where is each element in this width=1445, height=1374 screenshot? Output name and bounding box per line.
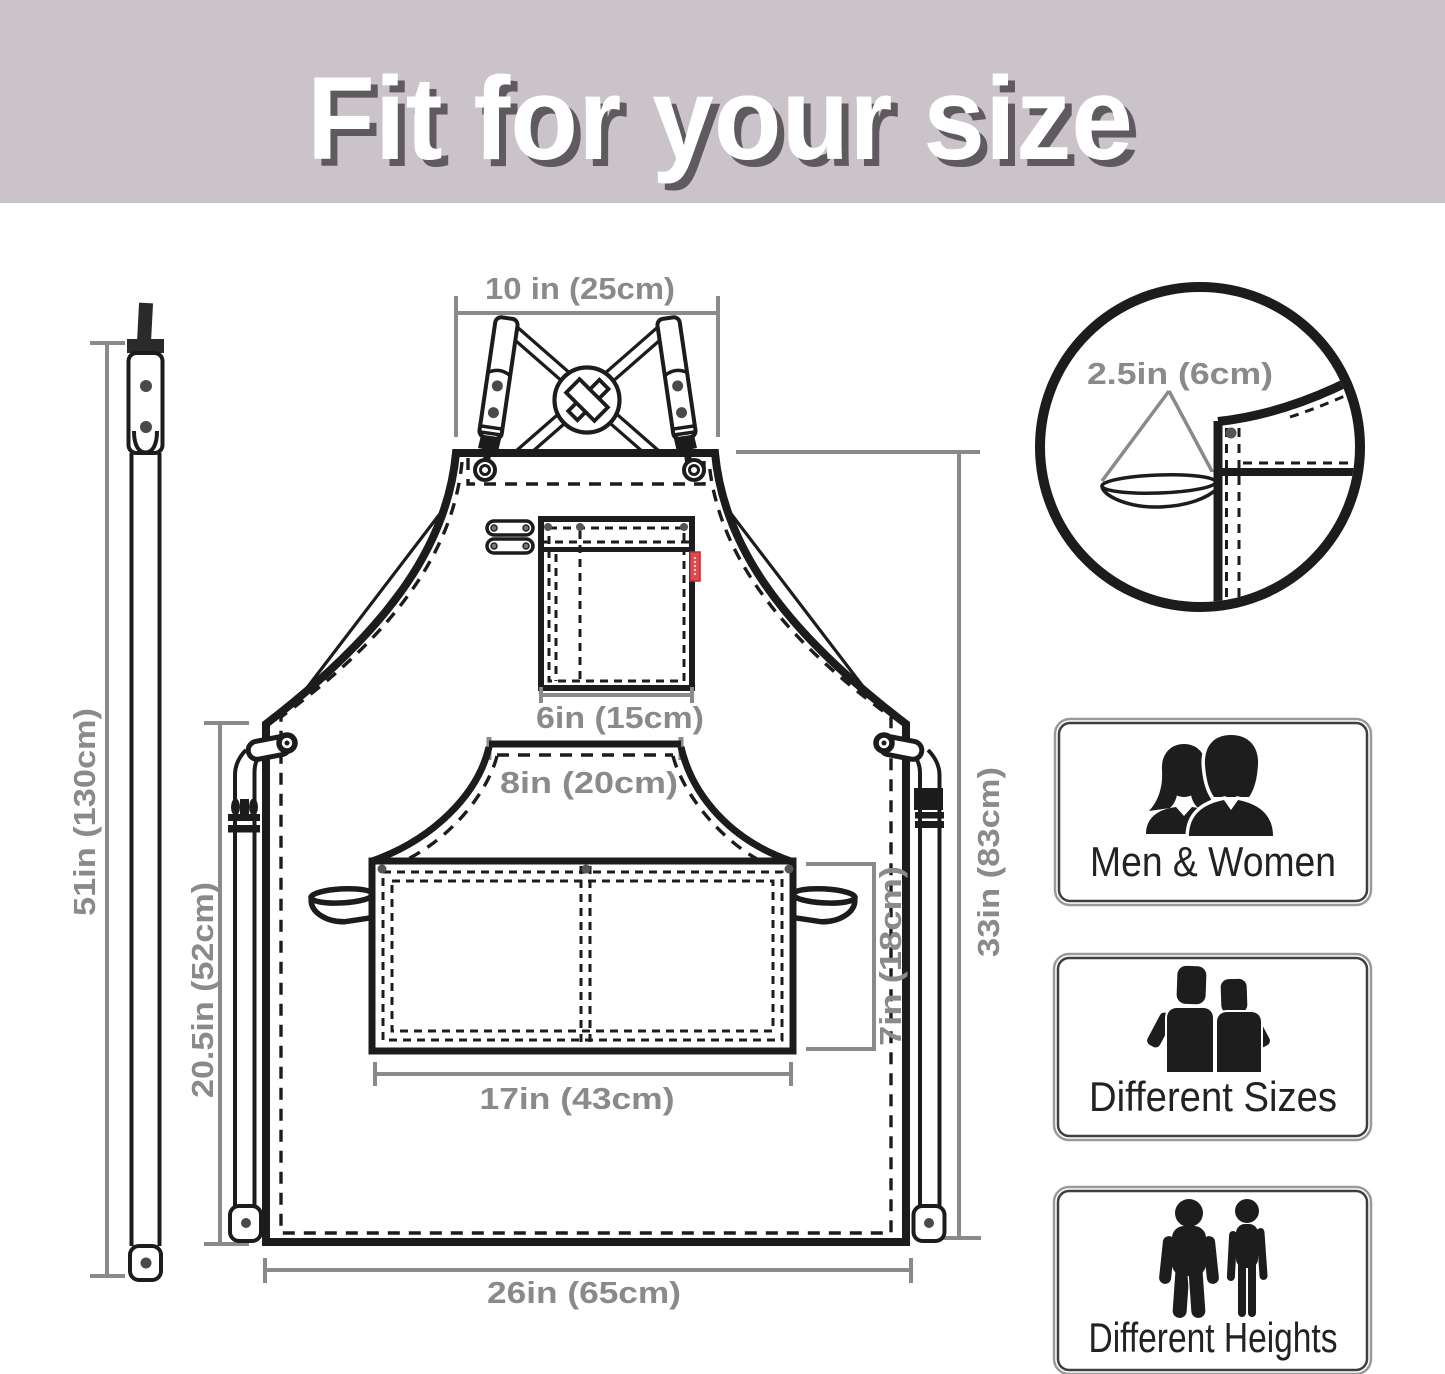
svg-text:10 in (25cm): 10 in (25cm) — [485, 271, 675, 306]
svg-text:8in (20cm): 8in (20cm) — [500, 765, 678, 800]
svg-text:26in (65cm): 26in (65cm) — [487, 1275, 681, 1310]
svg-text:51in (130cm): 51in (130cm) — [67, 708, 102, 916]
svg-text:Men & Women: Men & Women — [1090, 838, 1336, 885]
svg-text:33in (83cm): 33in (83cm) — [971, 767, 1006, 957]
svg-text:Different Sizes: Different Sizes — [1089, 1073, 1337, 1120]
svg-text:Fit for your size: Fit for your size — [307, 53, 1133, 185]
svg-text:6in (15cm): 6in (15cm) — [536, 700, 704, 735]
svg-text:20.5in (52cm): 20.5in (52cm) — [185, 882, 220, 1098]
svg-text:Different Heights: Different Heights — [1089, 1314, 1338, 1361]
svg-text:7in (18cm): 7in (18cm) — [873, 866, 908, 1046]
svg-text:2.5in (6cm): 2.5in (6cm) — [1087, 356, 1273, 391]
svg-text:17in (43cm): 17in (43cm) — [480, 1081, 675, 1116]
